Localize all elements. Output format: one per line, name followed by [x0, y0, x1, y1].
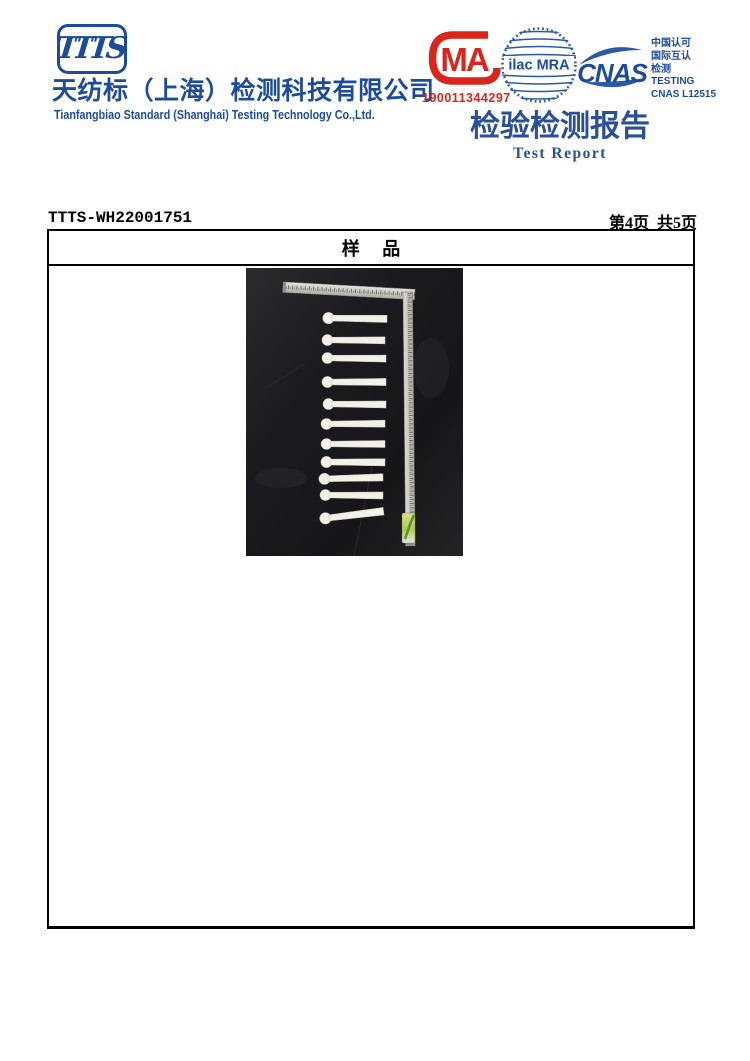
- ruler-green-label: [402, 513, 415, 543]
- report-page: TTTS 天纺标（上海）检测科技有限公司 Tianfangbiao Standa…: [0, 0, 750, 1061]
- ttts-logo-text: TTTS: [55, 34, 130, 64]
- cnas-line-2: 国际互认: [651, 51, 716, 64]
- report-number: TTTS-WH22001751: [48, 209, 192, 227]
- ttts-logo: TTTS: [57, 24, 127, 74]
- cma-number: 190011344297: [422, 91, 510, 105]
- company-name-en: Tianfangbiao Standard (Shanghai) Testing…: [54, 108, 375, 122]
- cnas-line-3: 检测: [651, 64, 716, 77]
- cma-logo: MA: [427, 29, 505, 91]
- sample-photo: [246, 268, 463, 556]
- cnas-accreditation-text: 中国认可 国际互认 检测 TESTING CNAS L12515: [651, 38, 716, 102]
- cnas-line-1: 中国认可: [651, 38, 716, 51]
- sample-section-title: 样 品: [49, 231, 693, 266]
- report-title-zh: 检验检测报告: [440, 110, 680, 143]
- cnas-logo: CNAS: [575, 37, 649, 97]
- cnas-text: CNAS: [577, 58, 648, 88]
- cnas-line-5: CNAS L12515: [651, 89, 716, 102]
- company-name-zh: 天纺标（上海）检测科技有限公司: [52, 78, 422, 106]
- report-title-en: Test Report: [440, 145, 680, 163]
- sample-section: 样 品: [47, 229, 695, 929]
- cnas-line-4: TESTING: [651, 76, 716, 89]
- cma-ma-text: MA: [440, 41, 488, 78]
- ilac-mra-text: ilac MRA: [508, 58, 570, 74]
- ilac-mra-logo: ilac MRA: [499, 23, 579, 107]
